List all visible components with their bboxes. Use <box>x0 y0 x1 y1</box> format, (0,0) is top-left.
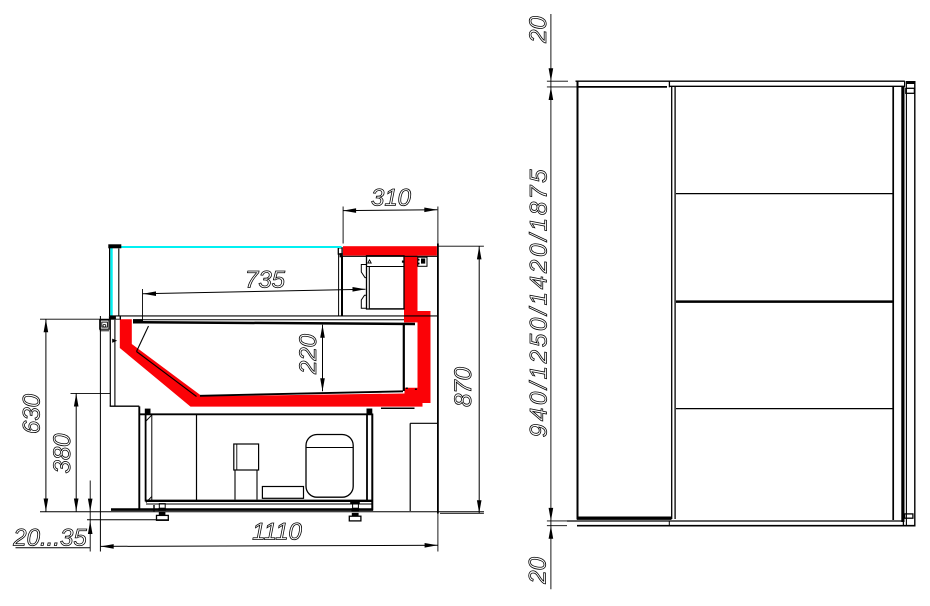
svg-text:870: 870 <box>450 366 477 407</box>
svg-text:220: 220 <box>295 333 322 375</box>
svg-text:380: 380 <box>49 433 76 474</box>
svg-text:20: 20 <box>525 16 552 44</box>
svg-text:630: 630 <box>19 393 46 434</box>
svg-text:20: 20 <box>525 556 552 584</box>
svg-text:1110: 1110 <box>252 519 302 546</box>
svg-text:735: 735 <box>245 267 286 294</box>
svg-text:310: 310 <box>371 185 412 212</box>
svg-text:940/1250/1420/1875: 940/1250/1420/1875 <box>526 167 553 438</box>
